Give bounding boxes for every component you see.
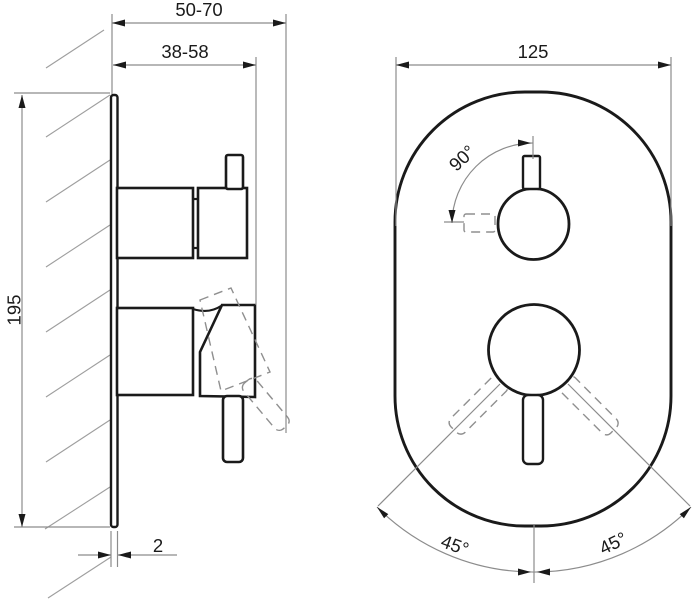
dim-trim-depth-label: 38-58 [161, 41, 208, 62]
arrowhead-left [396, 62, 409, 69]
hatch-line [46, 30, 104, 68]
upper-valve-body [117, 188, 193, 258]
arrowhead-center-left [518, 569, 531, 576]
arrowhead-right [273, 20, 286, 27]
arrowhead-top [19, 95, 26, 108]
hatch-line [46, 290, 110, 332]
lever-front [523, 395, 543, 464]
dim-plate-thickness: 2 [78, 531, 177, 567]
top-knob-handle-front [523, 156, 540, 189]
lower-valve-side [117, 305, 255, 462]
hatch-line [46, 160, 110, 202]
lower-knob-circle [489, 305, 580, 396]
wall-hatch [45, 30, 111, 598]
hatch-line [46, 420, 110, 462]
dim-total-depth-label: 50-70 [175, 0, 222, 20]
upper-valve-side [117, 155, 247, 258]
mixer-dimension-drawing: 50-70 38-58 195 2 [0, 0, 696, 600]
arrowhead-right [118, 552, 131, 559]
side-view: 50-70 38-58 195 2 [4, 0, 292, 598]
arrowhead-left [113, 62, 126, 69]
hatch-line [46, 225, 110, 267]
technical-drawing-canvas: 50-70 38-58 195 2 [0, 0, 696, 600]
dim-width-label: 125 [518, 41, 549, 62]
arrowhead-right [658, 62, 671, 69]
hatch-line [45, 487, 110, 529]
dim-height: 195 [4, 93, 111, 527]
hatch-line [48, 557, 111, 598]
dim-plate-thickness-label: 2 [153, 535, 163, 556]
hatch-line [46, 95, 110, 137]
arrowhead-right [243, 62, 256, 69]
lever-side [223, 396, 243, 462]
dim-lever-angle-right-label: 45° [596, 527, 630, 558]
lower-handle-fillet [193, 306, 221, 311]
upper-knob [198, 188, 247, 258]
lower-valve-body [117, 308, 193, 395]
hatch-line [46, 355, 110, 397]
dim-lever-angle-left-label: 45° [438, 530, 471, 559]
arrowhead-left [98, 552, 111, 559]
arrowhead-center-right [537, 569, 550, 576]
arrowhead-left [112, 20, 125, 27]
dim-height-label: 195 [4, 295, 25, 326]
top-knob-circle [498, 189, 569, 260]
arrowhead-bottom [19, 514, 26, 527]
upper-knob-handle [226, 155, 243, 189]
front-view: 125 90° 45° 45° [377, 41, 691, 583]
lower-handle [200, 305, 255, 397]
